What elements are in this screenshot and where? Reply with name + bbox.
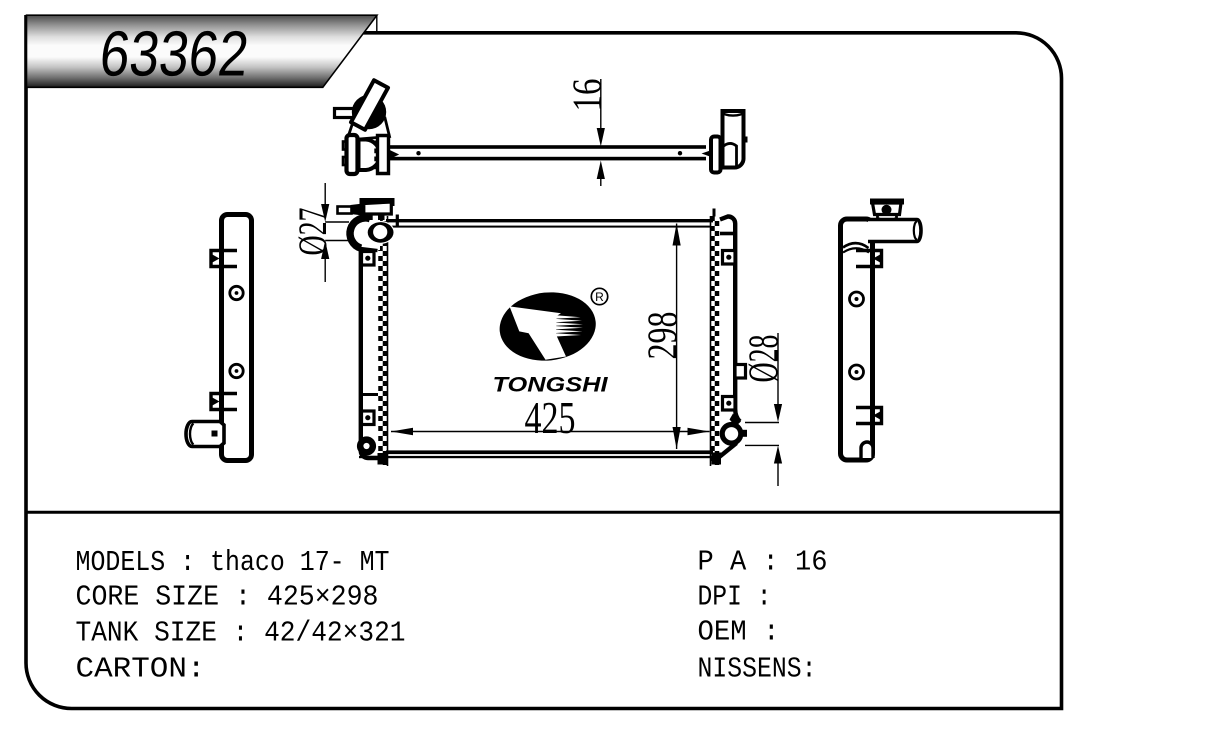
svg-text:16: 16 <box>564 79 610 112</box>
svg-text:63362: 63362 <box>97 18 253 90</box>
svg-text:Ø27: Ø27 <box>290 208 335 256</box>
svg-text:P A : 16: P A : 16 <box>698 546 828 579</box>
svg-text:MODELS : thaco 17- MT: MODELS : thaco 17- MT <box>76 546 390 579</box>
svg-text:298: 298 <box>641 312 687 360</box>
svg-text:Ø28: Ø28 <box>742 335 788 383</box>
svg-text:CORE SIZE : 425×298: CORE SIZE : 425×298 <box>76 581 379 614</box>
svg-text:TANK SIZE : 42/42×321: TANK SIZE : 42/42×321 <box>76 617 406 650</box>
svg-text:425: 425 <box>525 392 576 443</box>
svg-text:OEM :: OEM : <box>698 616 780 649</box>
svg-text:DPI :: DPI : <box>698 581 772 614</box>
svg-text:CARTON:: CARTON: <box>76 653 206 686</box>
svg-text:R: R <box>595 290 604 304</box>
svg-text:NISSENS:: NISSENS: <box>698 653 817 686</box>
